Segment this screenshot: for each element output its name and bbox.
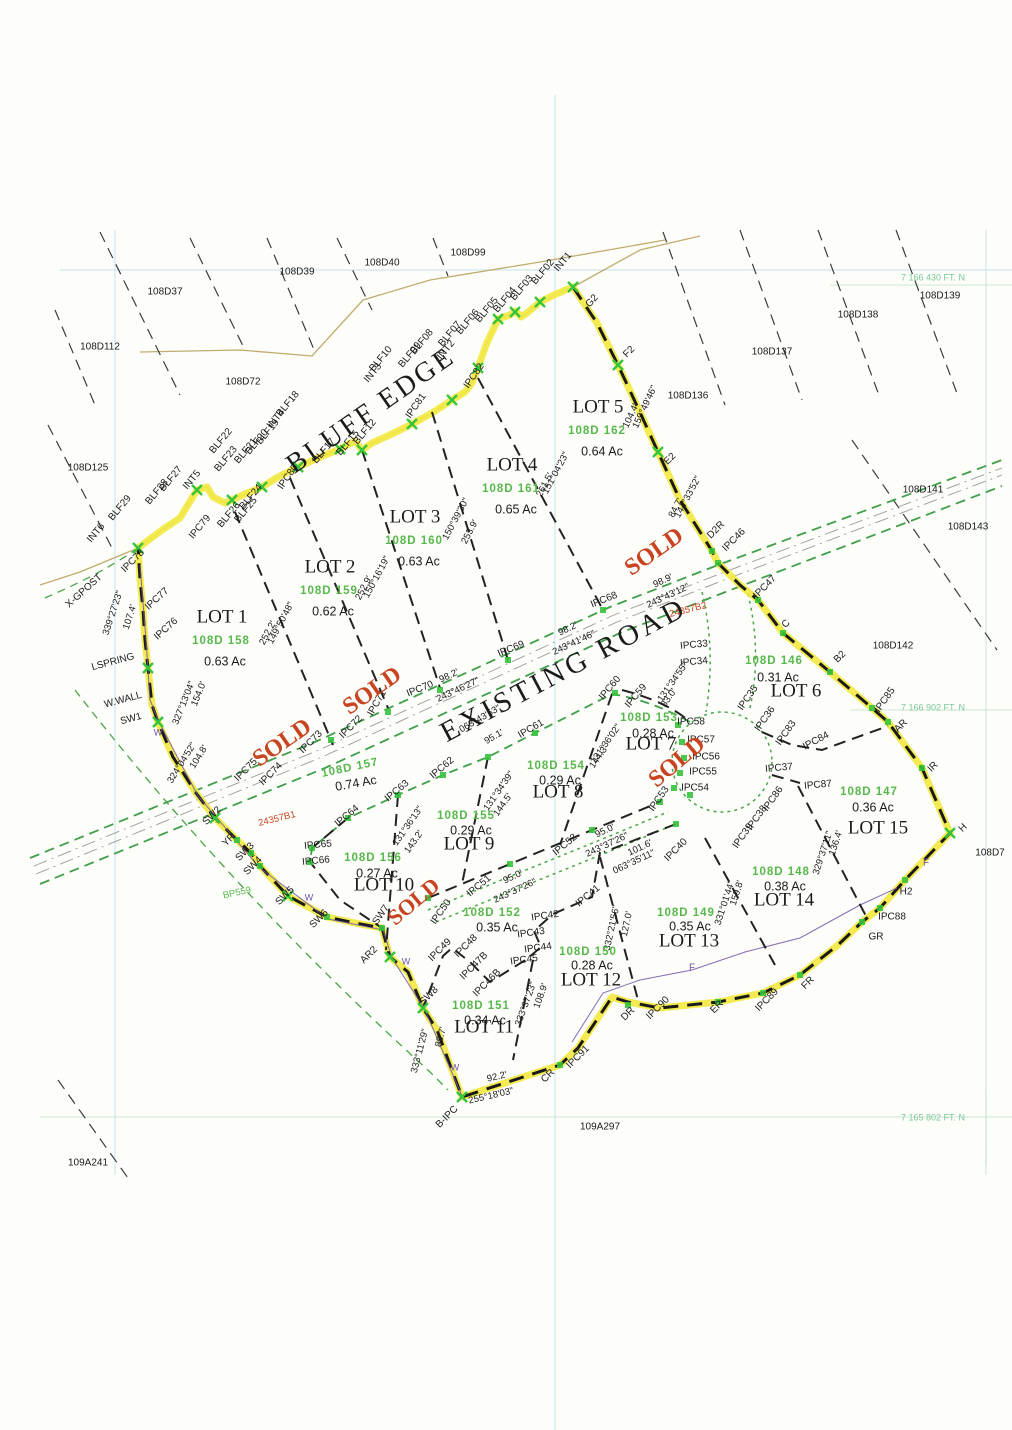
survey-point-marker <box>797 972 803 978</box>
map-label: 0.63 Ac <box>204 654 246 668</box>
map-label: IPC55 <box>689 767 717 778</box>
map-label: 108D141 <box>903 485 944 496</box>
map-label: W <box>154 727 163 737</box>
map-label: 108D112 <box>80 342 120 353</box>
map-label: 108D 155 <box>437 810 495 822</box>
map-label: LOT 3 <box>390 506 441 527</box>
map-label: GR <box>869 932 884 943</box>
survey-point-marker <box>780 630 786 636</box>
map-label: 108D143 <box>948 522 989 533</box>
map-label: 0.62 Ac <box>312 604 354 618</box>
survey-point-marker <box>885 719 891 725</box>
survey-point-marker <box>919 765 925 771</box>
map-label: W <box>451 1062 460 1072</box>
map-label: 109A241 <box>68 1158 108 1169</box>
map-label: 7 165 802 FT. N <box>901 1112 965 1122</box>
map-label: LOT 12 <box>561 969 621 990</box>
map-label: LOT 15 <box>848 817 908 838</box>
map-label: 108D 147 <box>840 786 898 798</box>
survey-point-marker <box>557 1062 563 1068</box>
map-label: F <box>689 963 695 974</box>
map-label: 0.65 Ac <box>495 502 537 516</box>
plat-map-svg: 108D112108D37108D39108D40108D99108D72108… <box>0 0 1012 1430</box>
map-label: 108D 154 <box>527 760 585 772</box>
map-label: 0.27 Ac <box>356 866 398 880</box>
map-label: 0.31 Ac <box>757 670 799 684</box>
survey-point-marker <box>709 548 715 554</box>
map-label: 108D 149 <box>657 907 715 919</box>
map-label: 0.34 Ac <box>464 1013 506 1027</box>
map-label: 108D 146 <box>745 655 803 667</box>
map-label: IPC58 <box>677 717 705 728</box>
map-label: 0.64 Ac <box>581 444 623 458</box>
map-label: 108D 151 <box>452 1000 510 1012</box>
map-label: 108D 153 <box>620 712 678 724</box>
map-label: 0.28 Ac <box>571 958 613 972</box>
map-label: 0.36 Ac <box>852 800 894 814</box>
survey-point-marker <box>859 919 865 925</box>
map-label: 108D 161 <box>482 483 540 495</box>
map-label: 108D 162 <box>568 425 626 437</box>
map-label: 0.35 Ac <box>669 919 711 933</box>
survey-point-marker <box>902 877 908 883</box>
survey-point-marker <box>507 861 513 867</box>
map-label: 108D 152 <box>463 907 521 919</box>
map-label: 108D39 <box>279 267 314 278</box>
survey-point-marker <box>328 737 334 743</box>
map-label: 108D7 <box>975 848 1005 859</box>
survey-point-marker <box>485 754 491 760</box>
map-label: 108D136 <box>668 391 709 402</box>
map-label: 108D 148 <box>752 866 810 878</box>
map-label: 108D137 <box>752 347 793 358</box>
map-label: 0.29 Ac <box>450 823 492 837</box>
map-label: IPC88 <box>878 912 906 923</box>
map-label: 108D 156 <box>344 852 402 864</box>
map-label: 108D 158 <box>192 635 250 647</box>
survey-point-marker <box>505 657 511 663</box>
map-label: H2 <box>900 887 913 898</box>
plat-map-page: Subdivision plat map - Bluff Edge lots a… <box>0 0 1012 1430</box>
map-label: 7 166 430 FT. N <box>901 272 965 282</box>
map-label: 0.29 Ac <box>539 773 581 787</box>
map-label: W <box>402 956 411 966</box>
map-label: LOT 1 <box>197 606 248 627</box>
map-label: 0.35 Ac <box>476 920 518 934</box>
map-label: F <box>923 858 929 869</box>
survey-point-marker <box>600 607 606 613</box>
map-label: 108D37 <box>147 287 182 298</box>
map-label: IPC54 <box>681 783 709 794</box>
map-label: W <box>305 892 314 902</box>
survey-point-marker <box>877 905 883 911</box>
map-label: 0.38 Ac <box>764 879 806 893</box>
map-label: 108D138 <box>838 310 879 321</box>
map-label: 0.63 Ac <box>398 554 440 568</box>
map-label: 108D 150 <box>559 946 617 958</box>
map-label: LOT 2 <box>305 556 356 577</box>
map-label: LOT 4 <box>487 454 538 475</box>
map-label: 108D125 <box>68 463 109 474</box>
map-label: 108D99 <box>450 248 485 259</box>
survey-point-marker <box>385 709 391 715</box>
map-label: 0.28 Ac <box>632 726 674 740</box>
survey-point-marker <box>673 821 679 827</box>
survey-point-marker <box>671 785 677 791</box>
map-label: 109A297 <box>580 1122 620 1133</box>
map-label: 108D 160 <box>385 535 443 547</box>
map-label: LOT 5 <box>573 396 624 417</box>
map-label: 108D72 <box>225 377 260 388</box>
map-label: 7 166 902 FT. N <box>901 702 965 712</box>
survey-point-marker <box>827 669 833 675</box>
survey-point-marker <box>715 560 721 566</box>
map-label: 108D40 <box>364 258 399 269</box>
map-label: 108D139 <box>920 291 961 302</box>
map-label: 108D 159 <box>300 585 358 597</box>
map-label: LOT 13 <box>659 930 719 951</box>
map-label: 108D142 <box>873 641 914 652</box>
